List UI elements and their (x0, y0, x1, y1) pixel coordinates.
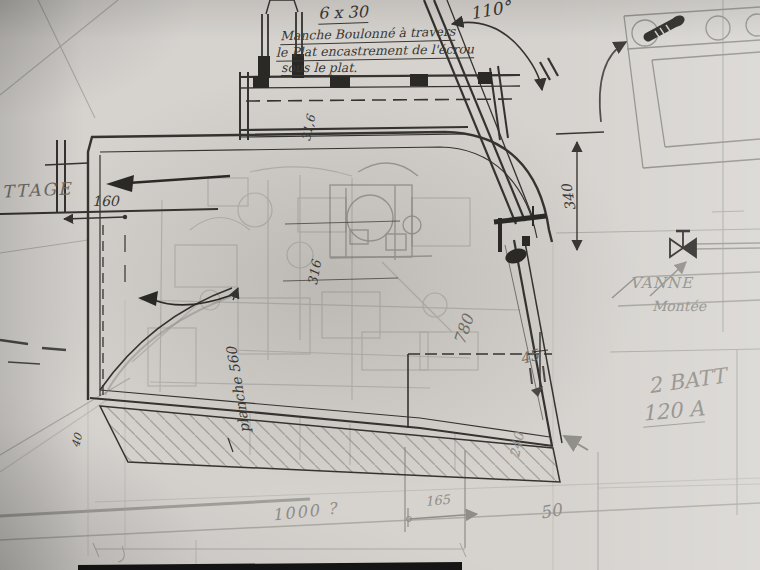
right-wall-diagonals (424, 0, 562, 446)
dim-50: 50 (539, 501, 563, 522)
bolt-icon (648, 13, 687, 37)
dim-160-line (64, 215, 127, 282)
dim-160: 160 (92, 194, 119, 209)
main-enclosure-outline (88, 132, 553, 446)
battery-arrow (600, 42, 626, 122)
blueprint-photo: 6 x 30 Manche Boulonné à travers le Plat… (0, 0, 760, 570)
ttage-label: TTAGE (2, 180, 73, 202)
montee-label: Montée (652, 299, 706, 314)
vanne-label: VANNE (630, 276, 693, 292)
batteries-line2: 120 A (641, 397, 705, 424)
hatched-band (100, 406, 560, 482)
note-line3: sous le plat. (281, 61, 399, 76)
dim-165: 165 (424, 493, 450, 509)
photo-edge-strip (78, 562, 462, 570)
left-arrow (106, 175, 230, 192)
note-line2: le Plat encastrement de l'écrou (276, 42, 474, 59)
note-bolt-spec: 6 x 30 (318, 4, 368, 23)
left-fitting (0, 140, 218, 364)
note-line1: Manche Boulonné à travers (280, 25, 456, 43)
hatch-arrow (564, 436, 588, 450)
bracket-detail (494, 206, 546, 266)
valve-icon (670, 231, 696, 257)
battery-box (624, 7, 760, 168)
